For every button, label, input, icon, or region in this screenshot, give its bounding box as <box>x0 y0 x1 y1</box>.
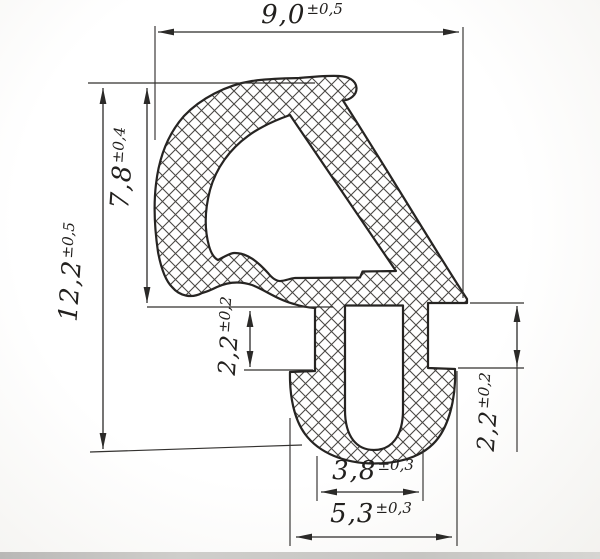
technical-drawing-canvas: 9,0±0,5 12,2±0,5 7,8±0,4 2,2±0,2 2,2±0,2… <box>0 0 600 559</box>
dim-label-right-notch: 2,2±0,2 <box>471 372 505 452</box>
dim-label-width-top: 9,0±0,5 <box>261 0 343 30</box>
dim-label-slot-width: 3,8±0,3 <box>332 456 414 486</box>
dim-tolerance-upper-height: ±0,4 <box>108 126 128 164</box>
dim-tolerance-width-top: ±0,5 <box>306 0 342 18</box>
dim-value-upper-height: 7,8 <box>105 164 138 210</box>
dim-value-width-top: 9,0 <box>261 0 305 30</box>
dim-tolerance-foot-width: ±0,3 <box>375 499 411 517</box>
dim-label-left-notch: 2,2±0,2 <box>212 296 246 376</box>
photo-edge-strip <box>0 552 600 559</box>
dim-value-total-height: 12,2 <box>54 259 88 323</box>
seal-profile-drawing <box>0 0 600 559</box>
dim-tolerance-left-notch: ±0,2 <box>215 296 235 334</box>
ext-line-total-height-bottom <box>90 445 302 452</box>
dim-value-slot-width: 3,8 <box>332 456 376 486</box>
dim-tolerance-right-notch: ±0,2 <box>474 372 494 410</box>
dim-tolerance-slot-width: ±0,3 <box>377 456 413 474</box>
dim-value-left-notch: 2,2 <box>213 333 244 376</box>
dim-label-upper-height: 7,8±0,4 <box>105 126 141 210</box>
dim-left-notch <box>244 311 313 370</box>
dim-value-right-notch: 2,2 <box>472 409 503 452</box>
profile-cross-section <box>155 76 467 464</box>
dim-value-foot-width: 5,3 <box>330 499 374 529</box>
dim-tolerance-total-height: ±0,5 <box>58 221 78 259</box>
dim-label-foot-width: 5,3±0,3 <box>330 499 412 529</box>
